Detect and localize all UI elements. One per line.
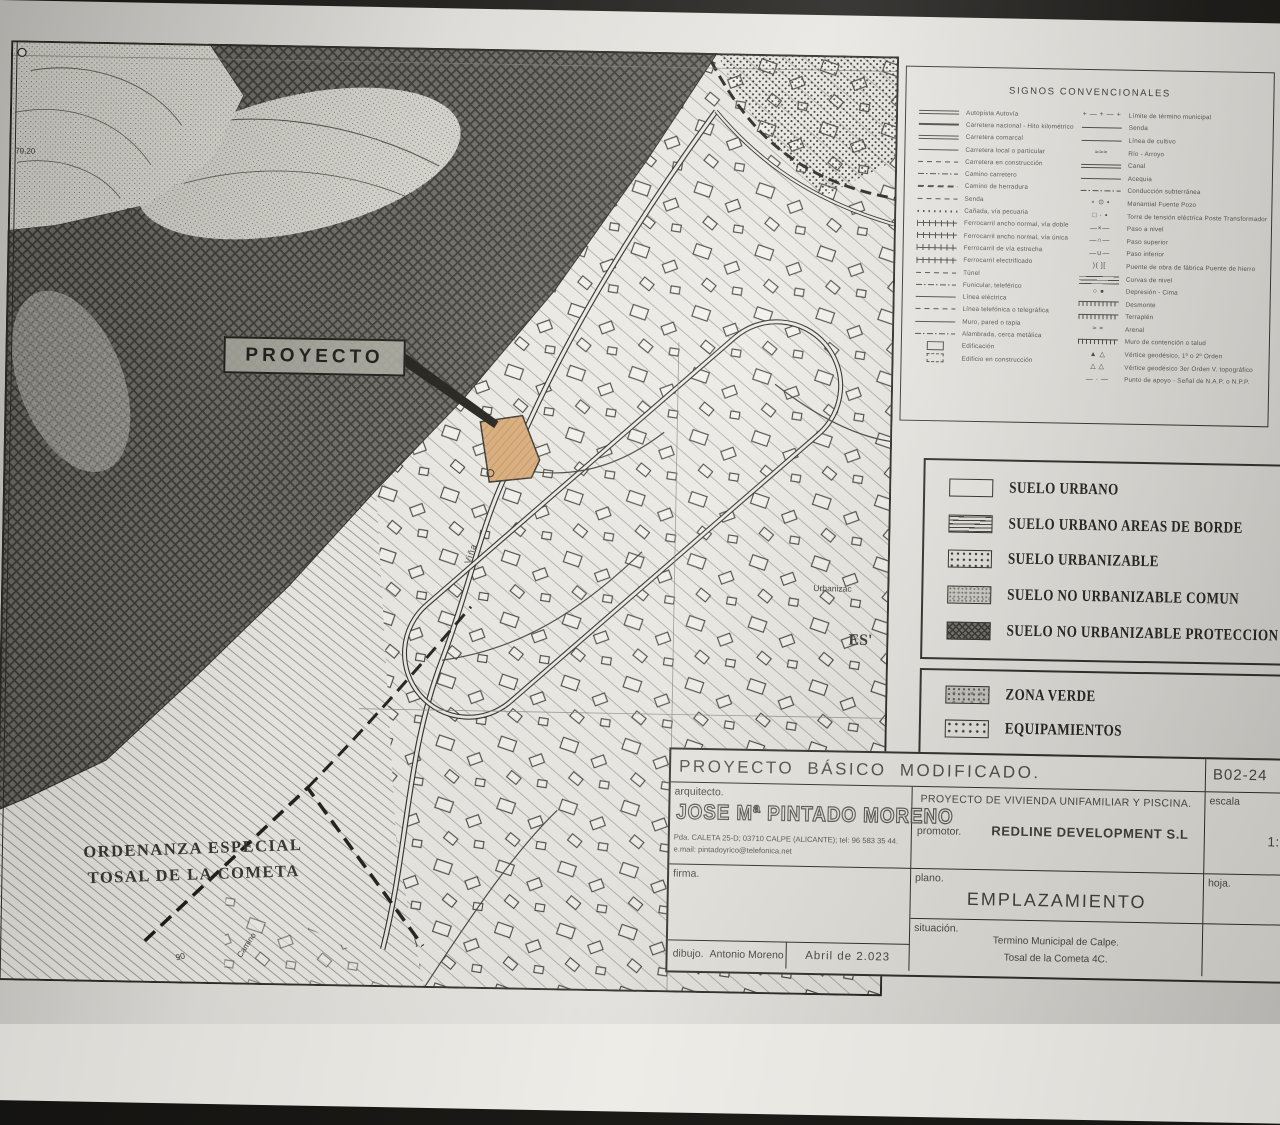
legend-label: Senda bbox=[1129, 125, 1148, 132]
legend-symbol bbox=[1080, 186, 1120, 197]
legend-symbol bbox=[1081, 135, 1121, 146]
legend-symbol: ∘ ⊙ • bbox=[1080, 198, 1120, 209]
legend-label: Manantial Fuente Pozo bbox=[1127, 201, 1196, 209]
legend-symbol: —×— bbox=[1080, 223, 1120, 234]
draftsman-label: dibujo. bbox=[673, 947, 704, 960]
legend-row: — · — Punto de apoyo - Señal de N.A.P. o… bbox=[1077, 373, 1264, 389]
legend-label: Camino de herradura bbox=[965, 183, 1028, 191]
title-block: PROYECTO BÁSICO MODIFICADO. B02-24 arqui… bbox=[665, 747, 1280, 983]
legend-symbol bbox=[917, 242, 957, 253]
legend-label: EQUIPAMIENTOS bbox=[1005, 720, 1122, 740]
legend-symbol: ≈≈≈ bbox=[1081, 148, 1121, 159]
scale-value: 1:2 bbox=[1205, 807, 1280, 850]
legend-label: Edificio en construcción bbox=[962, 355, 1033, 363]
legend-label: Cañada, vía pecuaria bbox=[964, 208, 1028, 216]
signos-convencionales-legend: SIGNOS CONVENCIONALES Autopista Autovía … bbox=[899, 66, 1274, 428]
legend-label: Muro, pared o tapia bbox=[962, 318, 1021, 326]
legend-symbol bbox=[918, 181, 958, 192]
legend-row: EQUIPAMIENTOS bbox=[945, 719, 1280, 744]
suelo-legend: SUELO URBANO SUELO URBANO AREAS DE BORDE… bbox=[920, 458, 1280, 666]
legend-symbol: ≈ ≈ bbox=[1078, 324, 1118, 335]
legend-symbol bbox=[915, 341, 955, 352]
legend-label: Paso a nivel bbox=[1127, 226, 1164, 234]
legend-symbol bbox=[915, 353, 955, 364]
legend-label: SUELO NO URBANIZABLE PROTECCION ESPECIAL bbox=[1006, 623, 1280, 647]
legend-label: Paso superior bbox=[1127, 238, 1169, 246]
legend-label: Terraplén bbox=[1125, 314, 1153, 322]
legend-symbol bbox=[919, 132, 959, 143]
legend-symbol: )( ][ bbox=[1079, 261, 1119, 272]
legend-label: Vértice geodésico, 1º o 2º Orden bbox=[1125, 352, 1223, 361]
legend-swatch bbox=[945, 719, 989, 738]
legend-swatch bbox=[946, 622, 990, 641]
elevation-label-79: 79,20 bbox=[15, 146, 35, 155]
legend-symbol bbox=[917, 205, 957, 216]
location-cell: situación. Termino Municipal de Calpe. T… bbox=[909, 919, 1203, 976]
legend-column-right: + — + — + Límite de término municipal Se… bbox=[1077, 109, 1269, 389]
legend-label: Autopista Autovía bbox=[966, 109, 1019, 117]
scale-cell: escala 1:2 bbox=[1204, 792, 1280, 876]
legend-symbol: □ · ▪ bbox=[1080, 211, 1120, 222]
legend-symbol bbox=[916, 279, 956, 290]
plan-sheet: PROYECTO ORDENANZA ESPECIAL TOSAL DE LA … bbox=[0, 0, 1280, 1124]
legend-symbol bbox=[917, 218, 957, 229]
legend-symbol: ○ ● bbox=[1079, 286, 1119, 297]
legend-symbol bbox=[918, 168, 958, 179]
drawing-code: B02-24 bbox=[1206, 759, 1280, 794]
legend-label: SUELO URBANO AREAS DE BORDE bbox=[1008, 515, 1242, 537]
legend-label: Canal bbox=[1128, 163, 1146, 170]
zona-legend: ZONA VERDE EQUIPAMIENTOS bbox=[918, 668, 1280, 761]
legend-swatch bbox=[949, 478, 993, 497]
legend-symbol bbox=[1078, 299, 1118, 310]
legend-label: Desmonte bbox=[1125, 301, 1155, 309]
legend-symbol bbox=[919, 107, 959, 118]
sheet-number-label: hoja. bbox=[1204, 874, 1280, 891]
legend-label: Carretera comarcal bbox=[966, 134, 1024, 142]
legend-label: Punto de apoyo - Señal de N.A.P. o N.P.P… bbox=[1124, 377, 1250, 386]
legend-label: Límite de término municipal bbox=[1129, 113, 1212, 122]
project-description-cell: PROYECTO DE VIVIENDA UNIFAMILIAR Y PISCI… bbox=[911, 787, 1205, 874]
legend-label: Conducción subterránea bbox=[1128, 188, 1201, 196]
legend-symbol: ▲ △ bbox=[1077, 349, 1117, 360]
legend-symbol bbox=[916, 255, 956, 266]
legend-symbol bbox=[1078, 337, 1118, 348]
legend-label: Paso inferior bbox=[1126, 251, 1164, 259]
es-label: ES' bbox=[848, 632, 872, 650]
legend-symbol bbox=[1081, 173, 1121, 184]
scale-label: escala bbox=[1205, 792, 1280, 809]
legend-swatch bbox=[948, 514, 992, 533]
draftsman-name: Antonio Moreno bbox=[709, 948, 783, 961]
legend-swatch bbox=[948, 550, 992, 569]
legend-label: Ferrocarril ancho normal, vía doble bbox=[964, 220, 1069, 229]
proyecto-banner: PROYECTO bbox=[223, 336, 406, 376]
legend-label: SUELO URBANO bbox=[1009, 479, 1119, 499]
legend-label: Puente de obra de fábrica Puente de hier… bbox=[1126, 264, 1255, 273]
signature-label: firma. bbox=[669, 864, 910, 883]
terrain-label-fr: Fr bbox=[126, 206, 133, 215]
legend-label: SUELO URBANIZABLE bbox=[1008, 551, 1159, 572]
architect-label: arquitecto. bbox=[670, 782, 911, 801]
legend-column-left: Autopista Autovía Carretera nacional - H… bbox=[914, 106, 1076, 386]
legend-label: Línea de cultivo bbox=[1128, 138, 1175, 146]
legend-row: SUELO URBANO bbox=[949, 478, 1280, 503]
legend-row: SUELO NO URBANIZABLE PROTECCION ESPECIAL bbox=[946, 622, 1280, 647]
sheet-number-cell: hoja. bbox=[1203, 874, 1280, 926]
legend-label: Curvas de nivel bbox=[1126, 276, 1173, 284]
signature-cell: firma. bbox=[668, 864, 911, 943]
urbanizacion-label: Urbanizac bbox=[813, 583, 851, 594]
plan-name-cell: plano. EMPLAZAMIENTO bbox=[910, 869, 1204, 924]
legend-label: Funicular, teleférico bbox=[963, 281, 1022, 289]
legend-row: ZONA VERDE bbox=[945, 686, 1280, 711]
plan-name: EMPLAZAMIENTO bbox=[910, 888, 1202, 914]
legend-label: Muro de contención o talud bbox=[1125, 339, 1206, 347]
legend-row: SUELO NO URBANIZABLE COMUN bbox=[947, 586, 1280, 611]
legend-symbol bbox=[917, 230, 957, 241]
ordenanza-label: ORDENANZA ESPECIAL TOSAL DE LA COMETA bbox=[67, 831, 319, 891]
legend-symbol bbox=[915, 304, 955, 315]
legend-symbol bbox=[917, 193, 957, 204]
legend-label: Ferrocarril ancho normal, vía única bbox=[964, 232, 1068, 241]
legend-label: Vértice geodésico 3er Orden V. topográfi… bbox=[1124, 364, 1253, 373]
legend-label: Carretera en construcción bbox=[965, 159, 1043, 167]
legend-row: SUELO URBANIZABLE bbox=[948, 550, 1280, 575]
legend-label: Acequia bbox=[1128, 175, 1152, 182]
legend-symbol bbox=[1078, 312, 1118, 323]
promoter-name: REDLINE DEVELOPMENT S.L bbox=[991, 823, 1189, 842]
architect-cell: arquitecto. JOSE Mª PINTADO MORENO Pda. … bbox=[669, 782, 912, 868]
legend-symbol bbox=[1081, 161, 1121, 172]
legend-label: SUELO NO URBANIZABLE COMUN bbox=[1007, 587, 1239, 609]
legend-label: Túnel bbox=[963, 269, 980, 276]
legend-label: Depresión - Cima bbox=[1126, 289, 1178, 297]
draftsman-cell: dibujo. Antonio Moreno bbox=[667, 939, 786, 968]
legend-label: Camino carretero bbox=[965, 171, 1017, 179]
architect-name: JOSE Mª PINTADO MORENO bbox=[676, 801, 888, 829]
legend-swatch bbox=[945, 686, 989, 705]
legend-symbol bbox=[1079, 274, 1119, 285]
legend-symbol: — · — bbox=[1077, 375, 1117, 386]
legend-symbol bbox=[918, 156, 958, 167]
legend-label: Carretera nacional - Hito kilométrico bbox=[966, 122, 1074, 131]
legend-label: Línea telefónica o telegráfica bbox=[962, 306, 1049, 315]
legend-symbol: —∩— bbox=[1080, 236, 1120, 247]
legend-label: Carretera local o particular bbox=[965, 146, 1045, 154]
sheet-number-empty-cell bbox=[1202, 924, 1280, 978]
legend-symbol: + — + — + bbox=[1082, 110, 1122, 121]
legend-label: Ferrocarril electrificado bbox=[963, 257, 1032, 265]
legend-symbol bbox=[919, 119, 959, 130]
legend-symbol bbox=[915, 328, 955, 339]
legend-symbol bbox=[916, 291, 956, 302]
legend-label: Línea eléctrica bbox=[963, 294, 1007, 302]
legend-label: Alambrada, cerca metálica bbox=[962, 331, 1042, 339]
legend-label: Arenal bbox=[1125, 327, 1145, 334]
legend-label: ZONA VERDE bbox=[1005, 687, 1096, 707]
legend-symbol bbox=[915, 316, 955, 327]
legend-symbol: —∪— bbox=[1079, 249, 1119, 260]
promoter-label: promotor. bbox=[917, 825, 962, 838]
legend-row: SUELO URBANO AREAS DE BORDE bbox=[948, 514, 1280, 539]
legend-symbol: △ △ bbox=[1077, 362, 1117, 373]
legend-symbol bbox=[918, 144, 958, 155]
legend-label: Río - Arroyo bbox=[1128, 150, 1164, 158]
legend-swatch bbox=[947, 586, 991, 605]
legend-symbol bbox=[916, 267, 956, 278]
legend-label: Torre de tensión eléctrica Poste Transfo… bbox=[1127, 213, 1267, 223]
contour-label-90: 90 bbox=[175, 951, 186, 963]
legend-label: Ferrocarril de vía estrecha bbox=[964, 245, 1043, 253]
legend-label: Senda bbox=[964, 195, 983, 202]
legend-row: Edificio en construcción bbox=[914, 352, 1071, 367]
legend-symbol bbox=[1082, 123, 1122, 134]
date-cell: Abril de 2.023 bbox=[786, 942, 909, 971]
legend-label: Edificación bbox=[962, 343, 995, 351]
